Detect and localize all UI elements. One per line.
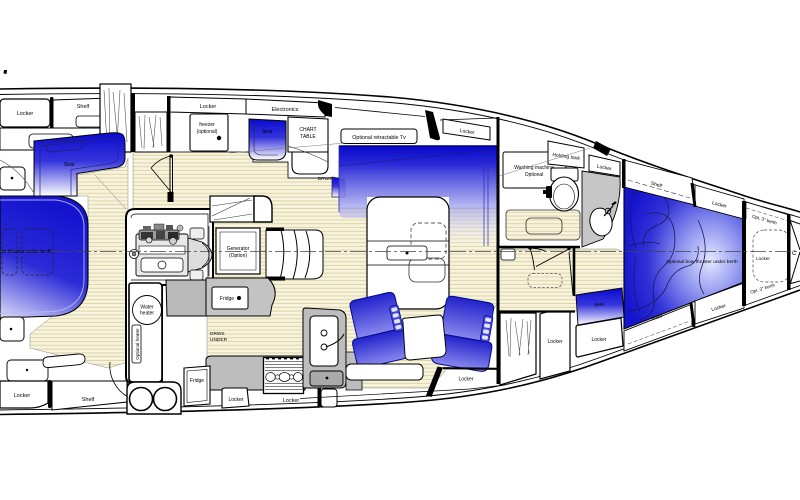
svg-text:Locker: Locker xyxy=(591,337,606,343)
svg-text:(Option): (Option) xyxy=(229,253,247,259)
svg-text:Locker: Locker xyxy=(14,393,31,399)
svg-text:Shelf: Shelf xyxy=(77,104,90,110)
svg-text:Locker: Locker xyxy=(458,377,473,383)
svg-text:Electronics: Electronics xyxy=(272,107,299,113)
svg-text:DRWS: DRWS xyxy=(318,176,333,182)
svg-text:Generator: Generator xyxy=(227,246,250,252)
svg-text:Locker: Locker xyxy=(17,111,34,117)
svg-text:Locker: Locker xyxy=(547,339,562,345)
svg-text:C: C xyxy=(792,251,797,257)
svg-text:Seat: Seat xyxy=(262,129,273,135)
svg-text:Locker: Locker xyxy=(228,397,243,403)
svg-text:freezer: freezer xyxy=(199,122,215,128)
svg-text:DRWS: DRWS xyxy=(210,331,225,337)
svg-text:heater: heater xyxy=(140,311,155,317)
svg-text:Optional heater: Optional heater xyxy=(135,328,140,360)
svg-text:Shelf: Shelf xyxy=(82,397,95,403)
svg-text:Optional: Optional xyxy=(525,172,544,178)
svg-text:Optional bow thruster under: Optional bow thruster under berth xyxy=(666,259,738,265)
svg-text:Optional retractable Tv: Optional retractable Tv xyxy=(352,135,406,141)
svg-text:Washing machine: Washing machine xyxy=(514,165,554,171)
svg-text:UNDER: UNDER xyxy=(210,337,228,343)
svg-text:Fridge: Fridge xyxy=(190,378,204,384)
svg-text:TABLE: TABLE xyxy=(300,134,316,140)
svg-text:Locker: Locker xyxy=(200,104,217,110)
svg-text:Fridge: Fridge xyxy=(220,296,234,302)
svg-text:CHART: CHART xyxy=(299,127,316,133)
svg-text:Locker: Locker xyxy=(283,398,300,404)
svg-text:rn thruster under berth: rn thruster under berth xyxy=(2,249,52,255)
svg-text:Locker: Locker xyxy=(756,256,770,261)
svg-text:(optional): (optional) xyxy=(197,129,218,135)
svg-text:Seat: Seat xyxy=(64,162,75,168)
